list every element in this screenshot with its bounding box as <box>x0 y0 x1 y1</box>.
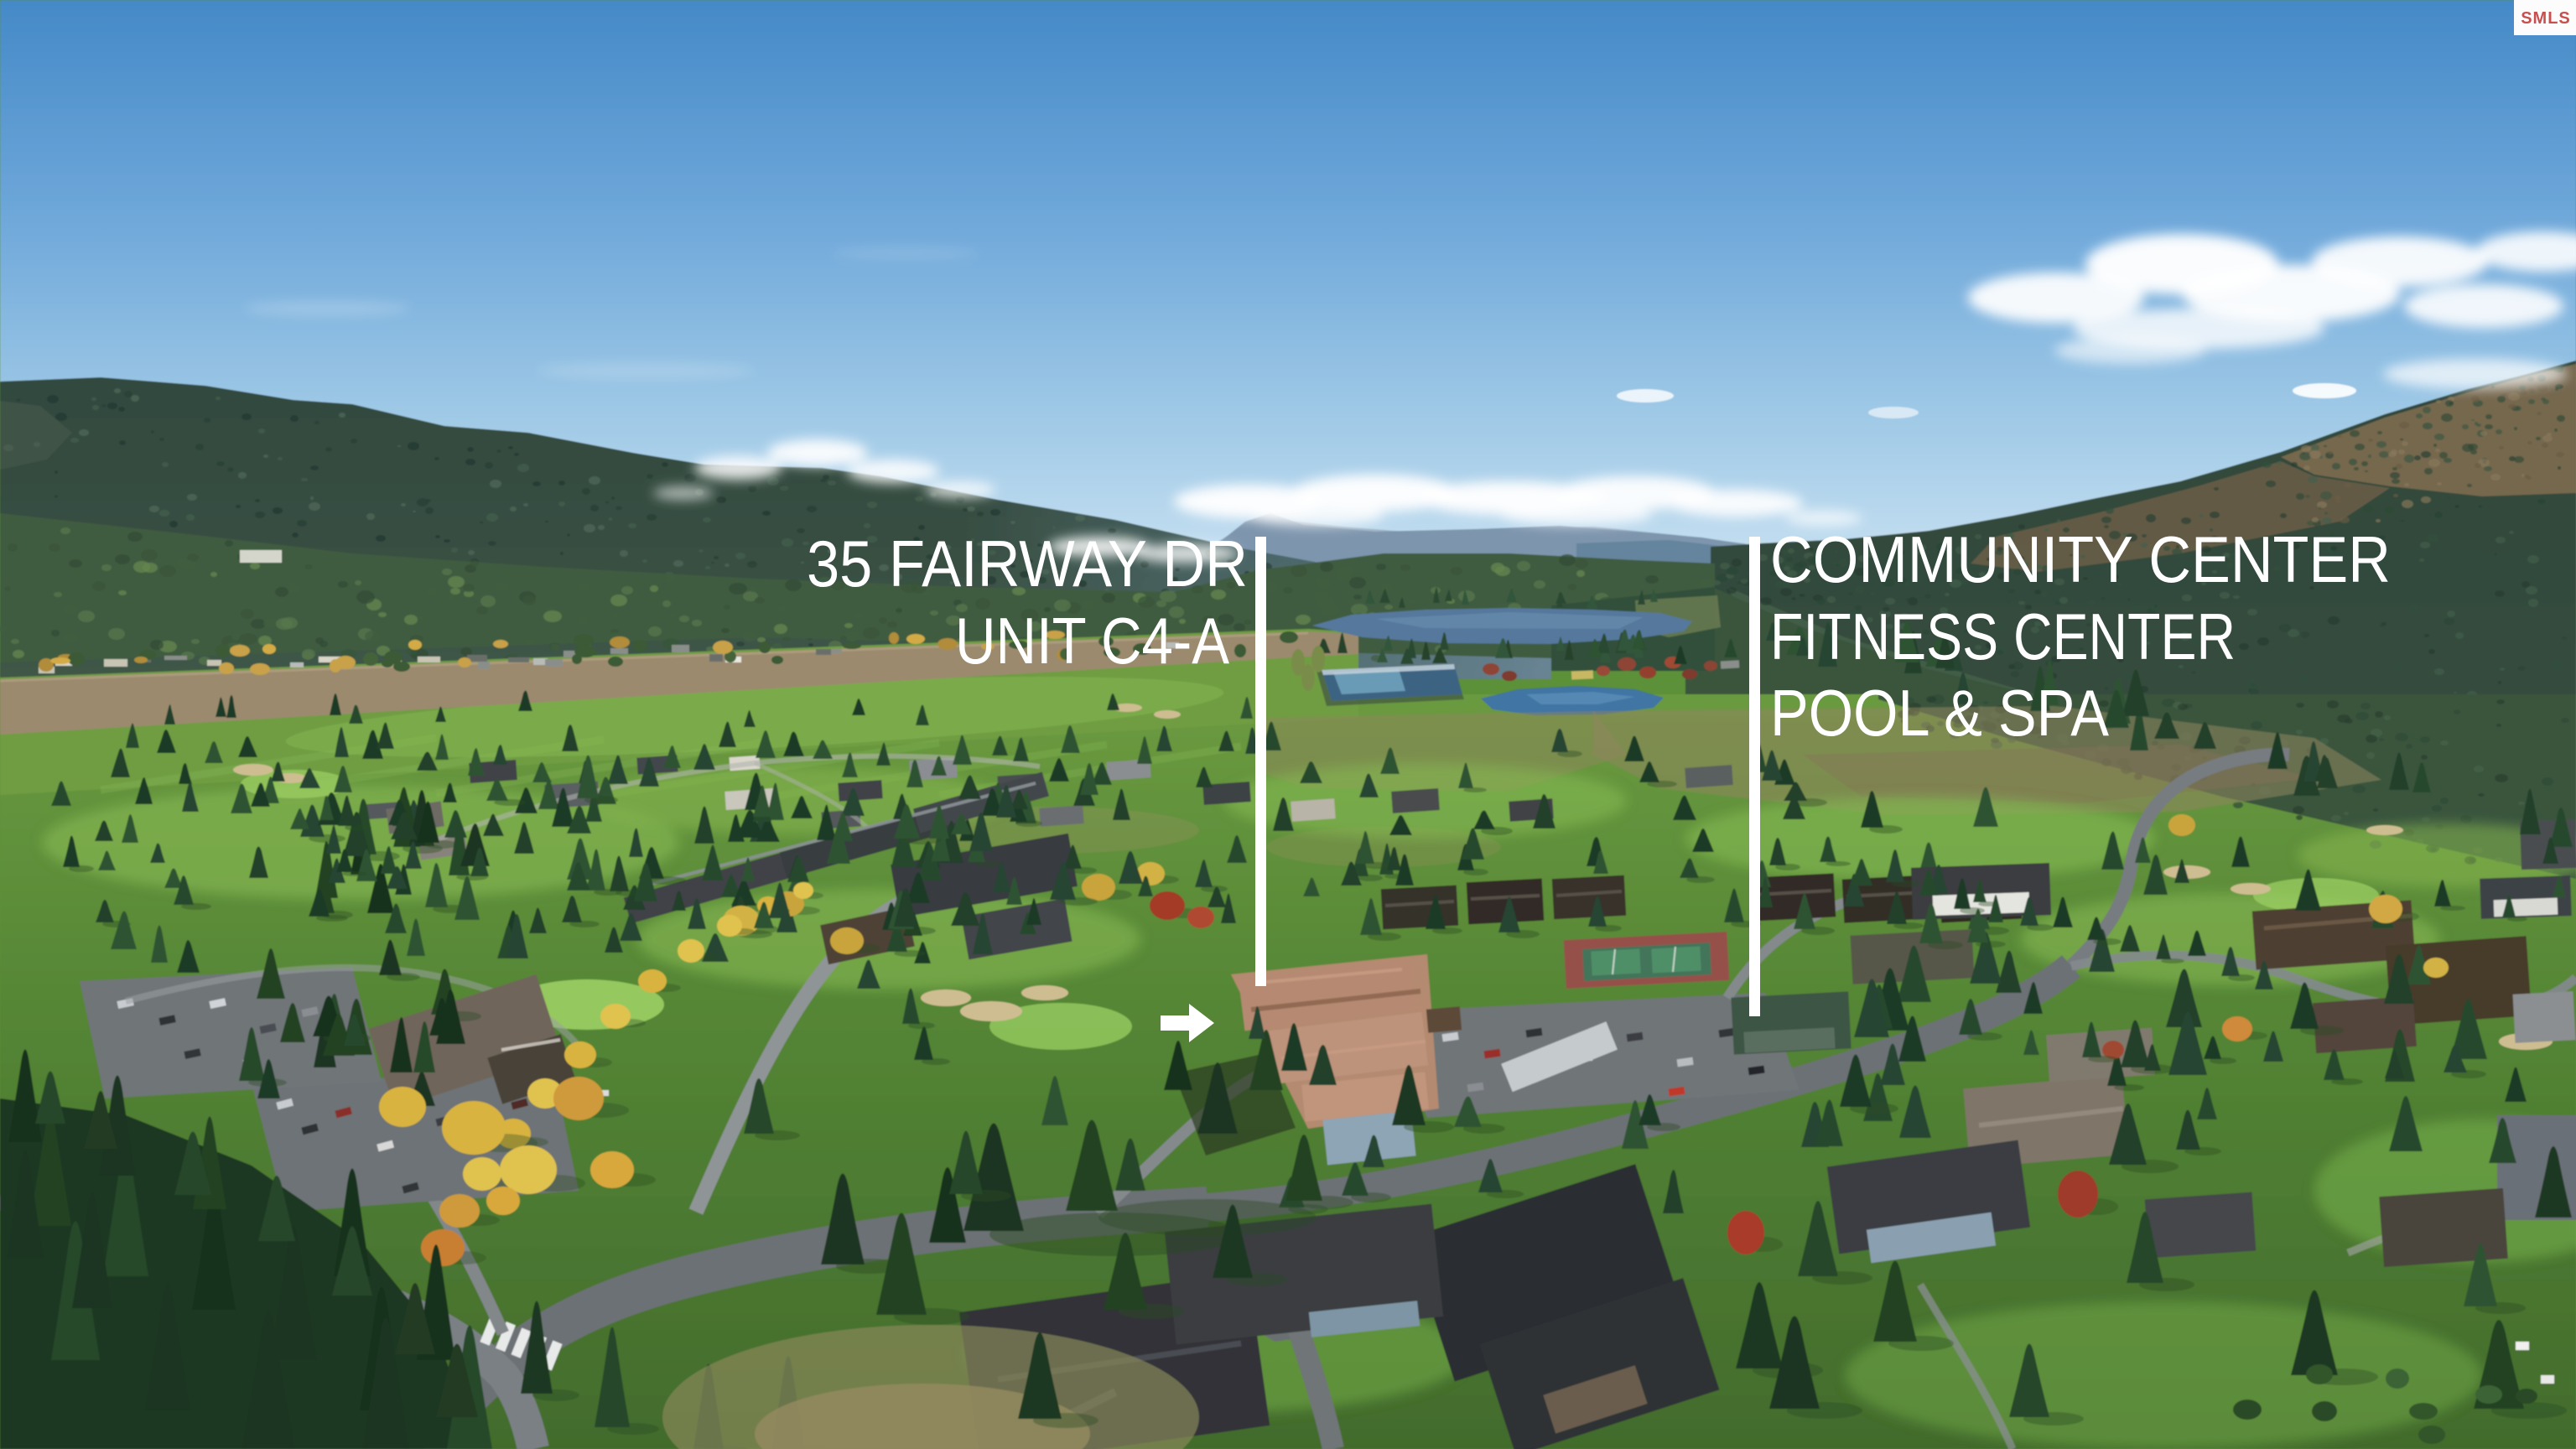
svg-text:COMMUNITY CENTER: COMMUNITY CENTER <box>1770 522 2391 596</box>
svg-text:SMLS: SMLS <box>2521 9 2571 28</box>
svg-text:POOL & SPA: POOL & SPA <box>1770 676 2109 750</box>
svg-text:UNIT C4-A: UNIT C4-A <box>955 604 1229 678</box>
svg-text:35 FAIRWAY DR: 35 FAIRWAY DR <box>807 527 1248 600</box>
svg-text:FITNESS CENTER: FITNESS CENTER <box>1770 600 2236 673</box>
